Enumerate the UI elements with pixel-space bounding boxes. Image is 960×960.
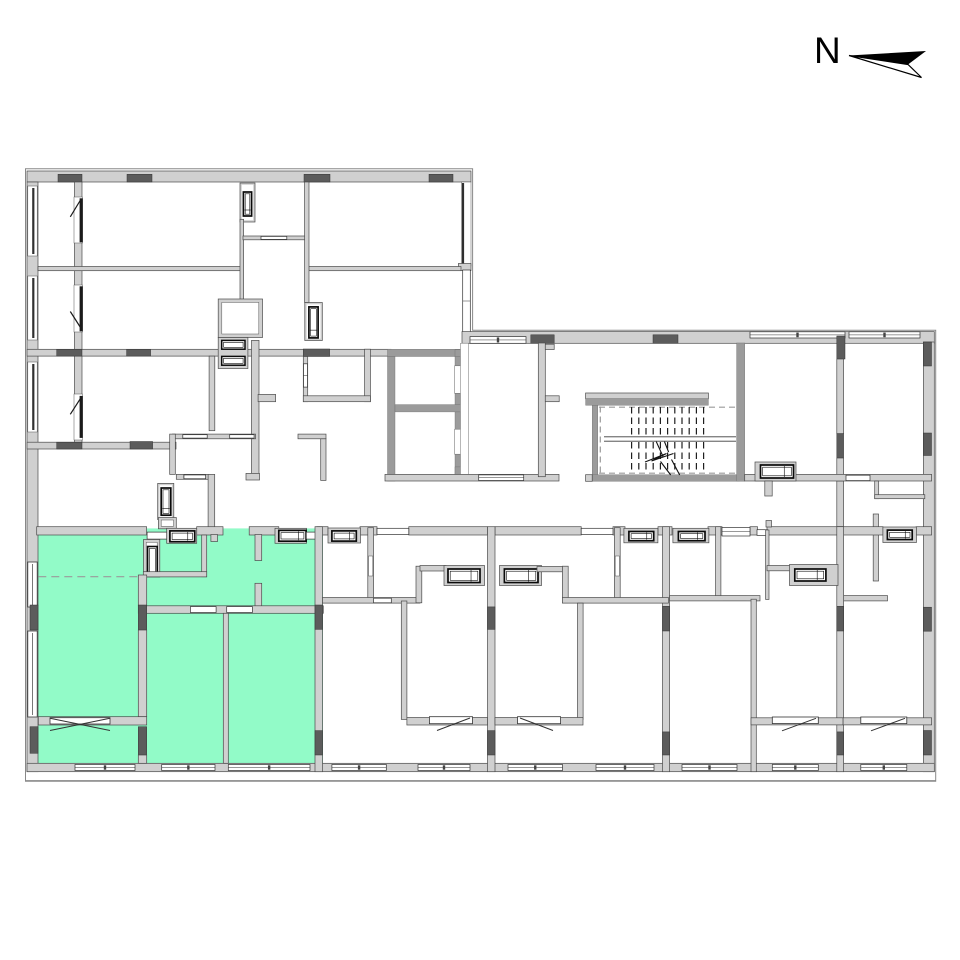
svg-text:N: N	[814, 30, 841, 71]
